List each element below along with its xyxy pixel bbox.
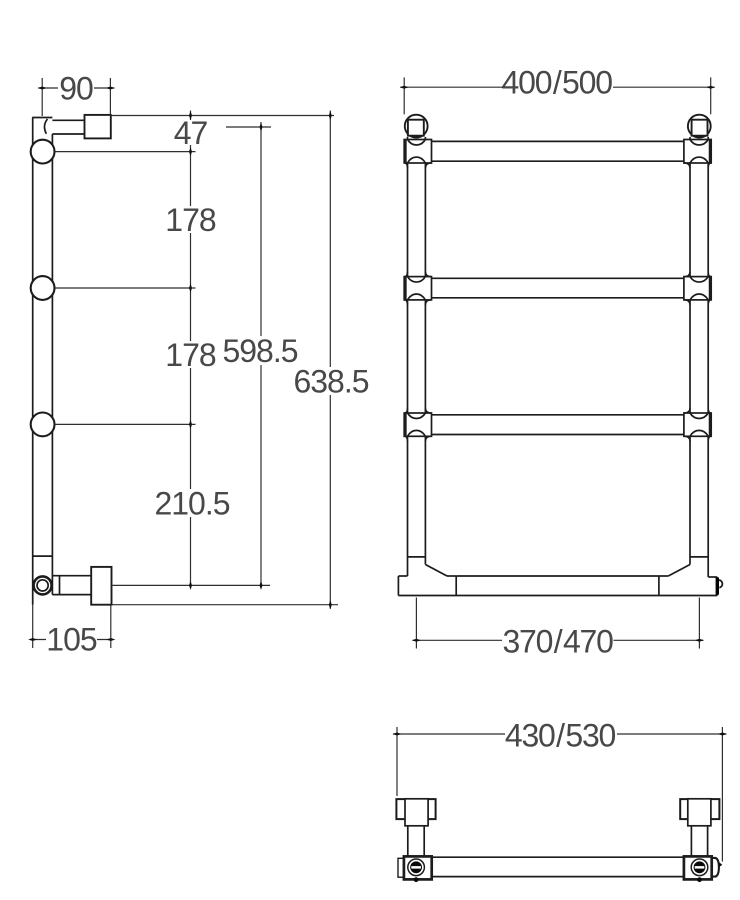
svg-text:638.5: 638.5 [293, 364, 368, 400]
svg-text:210.5: 210.5 [154, 486, 229, 522]
svg-text:430/530: 430/530 [505, 718, 616, 754]
svg-text:178: 178 [165, 202, 216, 238]
svg-text:47: 47 [174, 115, 208, 151]
svg-text:598.5: 598.5 [222, 333, 297, 369]
svg-text:370/470: 370/470 [502, 624, 613, 660]
svg-text:105: 105 [46, 622, 97, 658]
svg-text:90: 90 [59, 71, 93, 107]
svg-text:178: 178 [165, 337, 216, 373]
svg-text:400/500: 400/500 [502, 65, 613, 101]
